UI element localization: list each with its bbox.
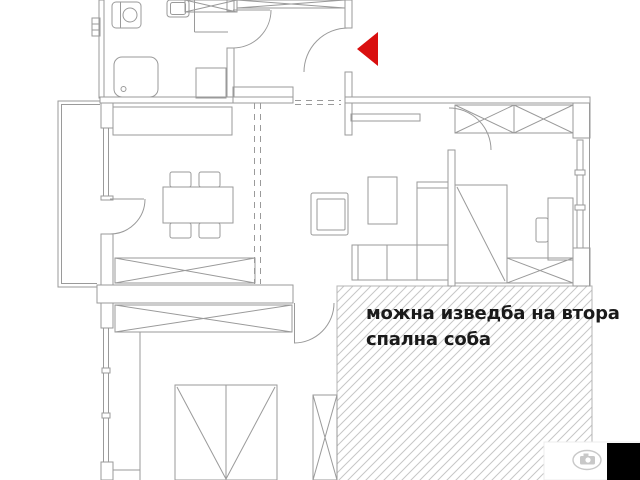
- bathroom-fixtures: [92, 0, 228, 98]
- bottom-bedroom-furniture: [113, 305, 337, 480]
- black-corner-box: [607, 443, 640, 480]
- floor-plan-canvas: можна изведба на втора спална соба: [0, 0, 640, 480]
- annotation-text: можна изведба на втора спална соба: [366, 301, 606, 353]
- kitchen-dining-furniture: [113, 107, 255, 283]
- balcony-parapet: [58, 101, 100, 287]
- right-bedroom-furniture: [455, 105, 573, 283]
- floor-plan-drawing: [0, 0, 640, 480]
- annotation-line-1: можна изведба на втора: [366, 301, 606, 327]
- dashed-partition-lines: [255, 101, 342, 285]
- annotation-line-2: спална соба: [366, 327, 606, 353]
- entrance-arrow-icon: [357, 32, 378, 66]
- living-room-furniture: [311, 114, 448, 280]
